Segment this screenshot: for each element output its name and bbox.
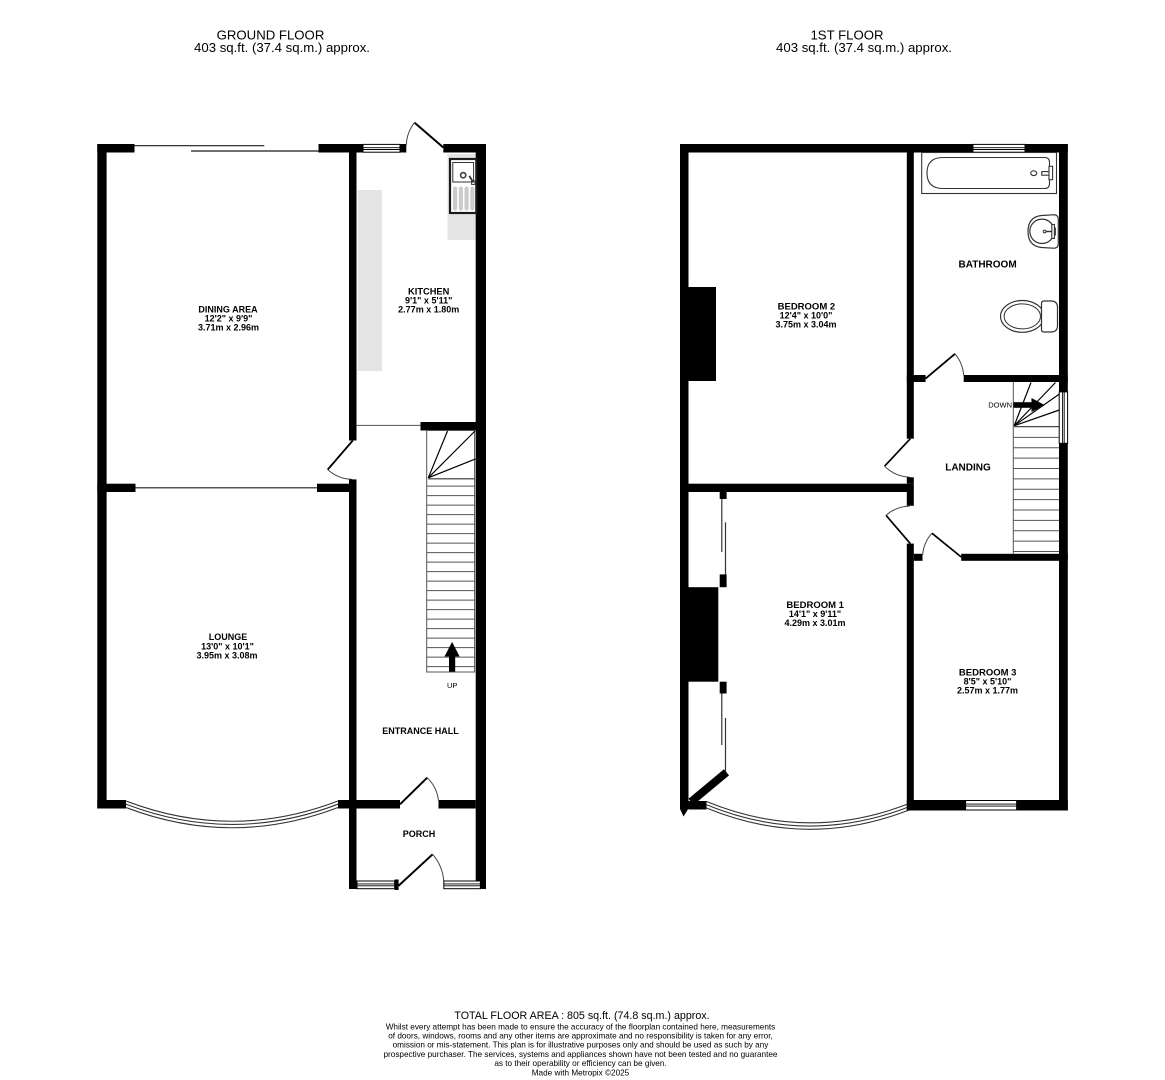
svg-text:as to their operability or eff: as to their operability or efficiency ca… xyxy=(494,1059,666,1068)
svg-text:3.75m x 3.04m: 3.75m x 3.04m xyxy=(775,320,836,330)
svg-text:DOWN: DOWN xyxy=(988,400,1012,409)
svg-text:PORCH: PORCH xyxy=(403,829,436,839)
svg-text:4.29m x 3.01m: 4.29m x 3.01m xyxy=(784,618,845,628)
svg-text:403 sq.ft. (37.4 sq.m.) approx: 403 sq.ft. (37.4 sq.m.) approx. xyxy=(194,40,370,55)
svg-text:Made with Metropix ©2025: Made with Metropix ©2025 xyxy=(532,1068,630,1077)
svg-text:UP: UP xyxy=(447,681,457,690)
svg-text:Whilst every attempt has been: Whilst every attempt has been made to en… xyxy=(386,1022,776,1031)
svg-text:403 sq.ft. (37.4 sq.m.) approx: 403 sq.ft. (37.4 sq.m.) approx. xyxy=(776,40,952,55)
svg-text:ENTRANCE HALL: ENTRANCE HALL xyxy=(382,726,459,736)
svg-text:2.57m x 1.77m: 2.57m x 1.77m xyxy=(957,686,1018,696)
svg-text:2.77m x 1.80m: 2.77m x 1.80m xyxy=(398,305,459,315)
svg-text:BATHROOM: BATHROOM xyxy=(959,259,1017,270)
svg-text:LANDING: LANDING xyxy=(945,463,991,474)
svg-text:of doors, windows, rooms and a: of doors, windows, rooms and any other i… xyxy=(388,1031,773,1040)
svg-text:prospective purchaser. The ser: prospective purchaser. The services, sys… xyxy=(383,1050,777,1059)
svg-text:3.71m x 2.96m: 3.71m x 2.96m xyxy=(198,322,259,332)
svg-text:omission or mis-statement. Thi: omission or mis-statement. This plan is … xyxy=(393,1041,770,1050)
svg-text:TOTAL FLOOR AREA : 805 sq.ft.: TOTAL FLOOR AREA : 805 sq.ft. (74.8 sq.m… xyxy=(454,1010,709,1022)
svg-text:3.95m x 3.08m: 3.95m x 3.08m xyxy=(196,650,257,660)
